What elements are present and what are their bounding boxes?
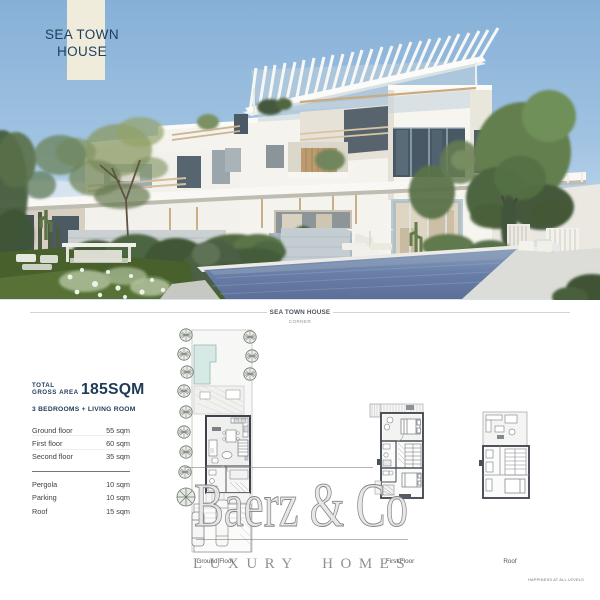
svg-text:Baerz & Co: Baerz & Co [194, 472, 408, 540]
